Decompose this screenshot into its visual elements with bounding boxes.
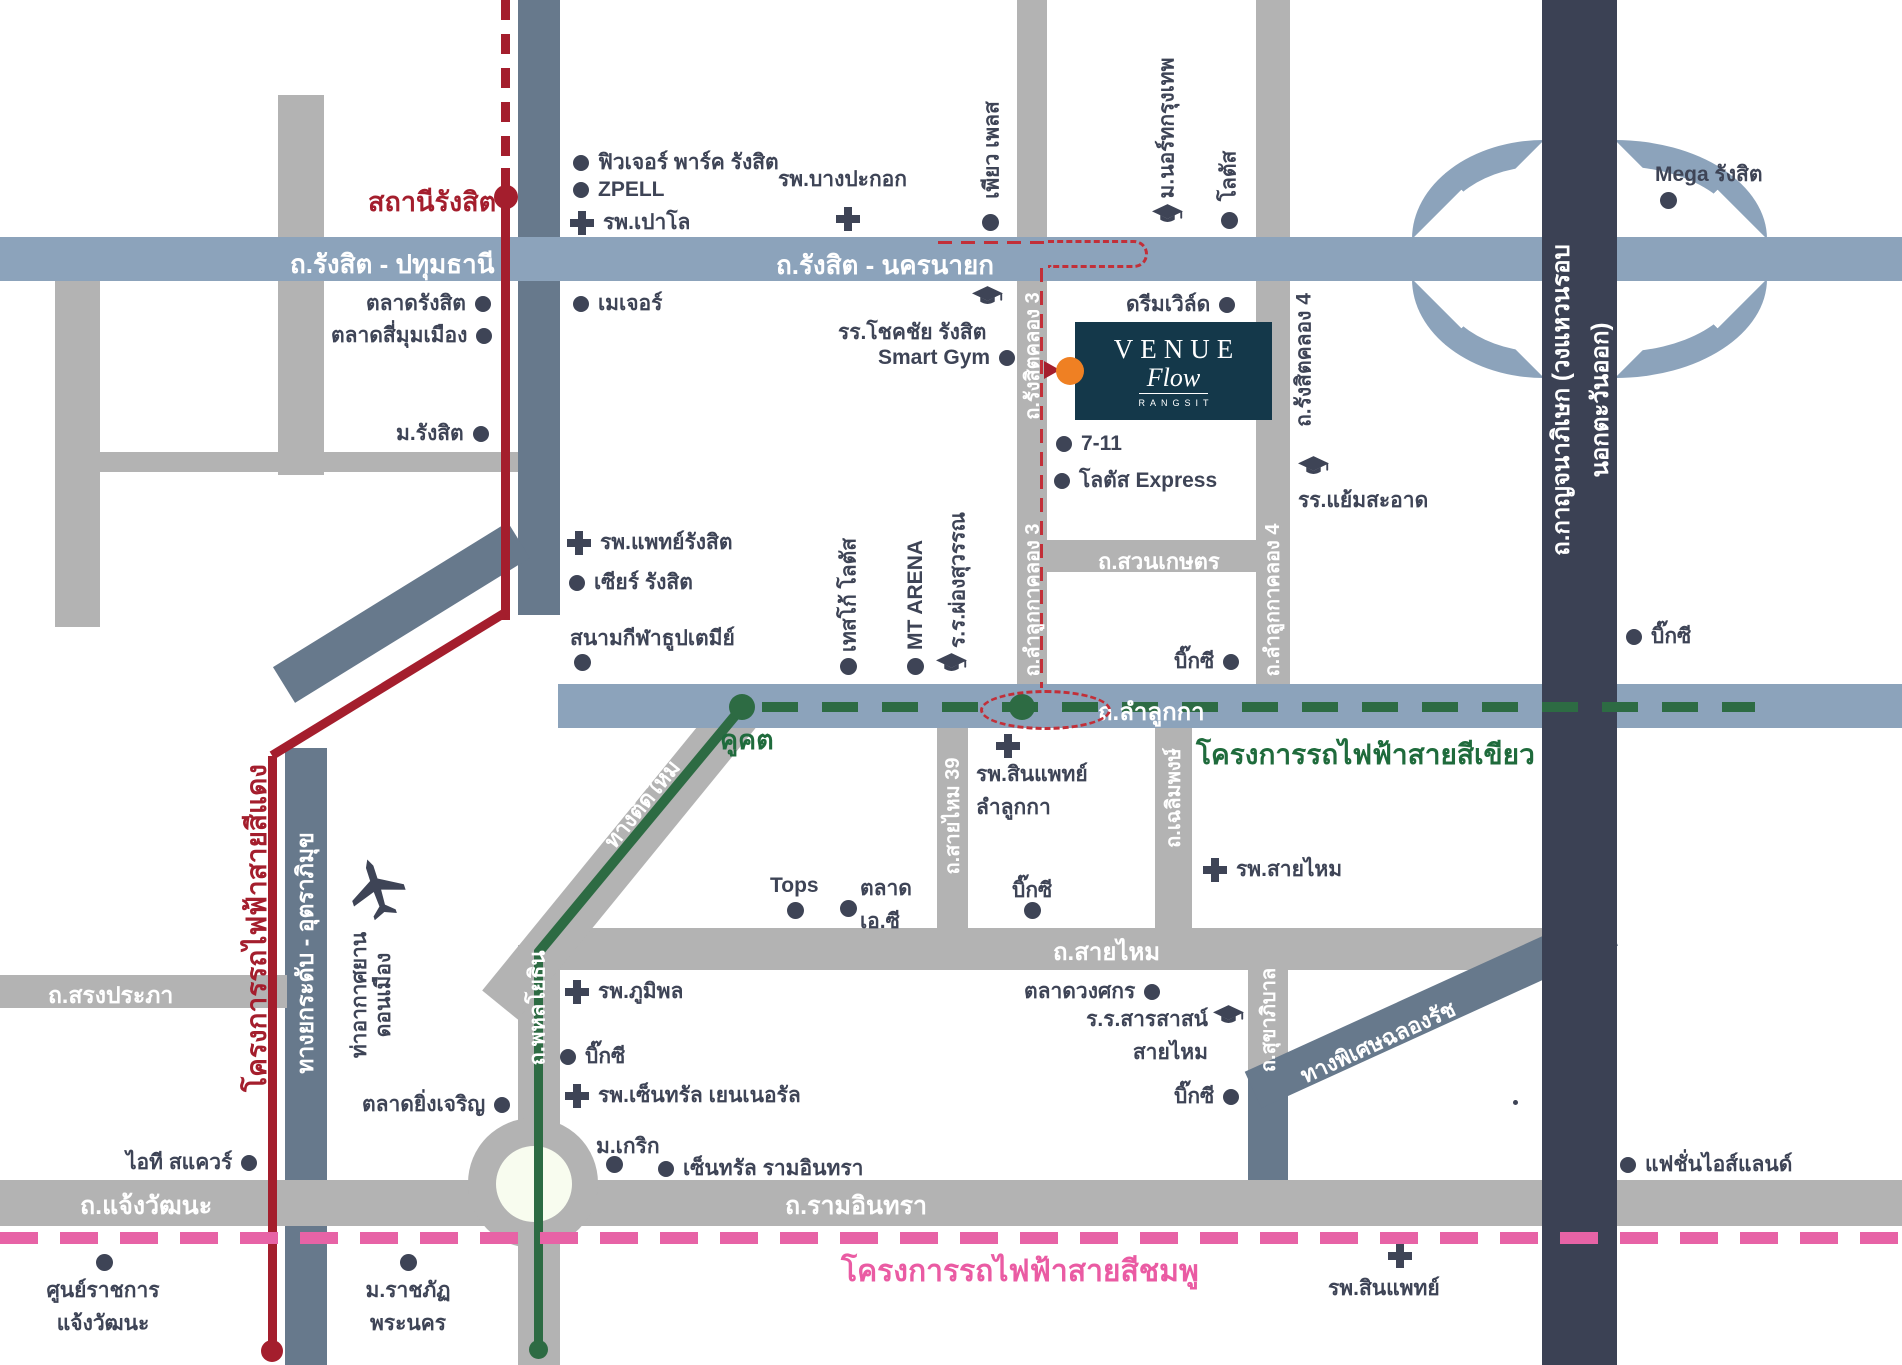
road-left-far (55, 237, 100, 627)
poi-phongsuwan-school: ร.ร.ผ่องสุวรรณ (942, 512, 975, 648)
ramp-arc-bottom-right (1615, 279, 1767, 378)
poi-north-bangkok-university: ม.นอร์ทกรุงเทพ (1151, 58, 1184, 199)
place-dot-icon (1024, 902, 1041, 919)
poi-bigc-sukhaphiban: บิ๊กซี (1174, 1080, 1239, 1113)
red-line-dashed-top (501, 0, 510, 168)
school-cap-icon (972, 286, 1003, 312)
poi-central-general-hospital: รพ.เซ็นทรัล เยนเนอรัล (565, 1079, 801, 1112)
poi-it-square: ไอที สแควร์ (126, 1146, 257, 1179)
poi-major: เมเจอร์ (573, 287, 662, 320)
school-cap-icon (1213, 1005, 1244, 1031)
pink-line-dashed (0, 1232, 1902, 1244)
label-pink-line: โครงการรถไฟฟ้าสายสีชมพู (841, 1248, 1199, 1295)
label-song-prapha: ถ.สรงประภา (48, 978, 173, 1014)
hospital-cross-icon (565, 980, 589, 1004)
place-dot-icon (96, 1254, 113, 1271)
place-dot-icon (1221, 212, 1238, 229)
hospital-cross-icon (1203, 858, 1227, 882)
poi-talad-rangsit: ตลาดรังสิต (366, 287, 491, 320)
place-dot-icon (1626, 629, 1642, 645)
label-saimai: ถ.สายไหม (1053, 932, 1160, 971)
road-saimai (560, 928, 1542, 970)
poi-bigc-khlong4: บิ๊กซี (1174, 645, 1239, 678)
place-dot-icon (1223, 654, 1239, 670)
poi-talad-simummuang: ตลาดสี่มุมเมือง (331, 319, 492, 352)
place-dot-icon (400, 1254, 417, 1271)
project-name: VENUE (1114, 334, 1240, 365)
poi-future-park: ฟิวเจอร์ พาร์ค รังสิต (573, 146, 779, 179)
label-ramindra: ถ.รามอินทรา (785, 1186, 927, 1226)
place-dot-icon (560, 1049, 576, 1065)
label-khukhot: คูคต (720, 718, 774, 761)
place-dot-icon (573, 155, 589, 171)
poi-zpell: ZPELL (573, 178, 665, 202)
poi-krirk-university: ม.เกริก (596, 1130, 660, 1163)
label-lamlukka-khlong4: ถ.ลำลูกกาคลอง 4 (1256, 524, 1288, 677)
location-map: ถ.กาญจนาภิเษก (วงแหวนรอบนอกตะวันออก) ถ.ร… (0, 0, 1902, 1365)
poi-pure-place: เพียว เพลส (976, 101, 1009, 199)
green-line-dashed (762, 702, 1755, 712)
place-dot-icon (982, 214, 999, 231)
poi-lotus-express: โลตัส Express (1054, 464, 1217, 497)
poi-chokchai-school: รร.โชคชัย รังสิต (838, 316, 986, 349)
place-dot-icon (475, 296, 491, 312)
place-dot-icon (1660, 192, 1677, 209)
poi-synphaet-hospital: รพ.สินแพทย์ (1328, 1272, 1440, 1305)
label-chaengwattana: ถ.แจ้งวัฒนะ (80, 1186, 212, 1226)
road-kanchanaphisek (1542, 0, 1617, 1365)
poi-mt-arena: MT ARENA (904, 540, 928, 650)
poi-talad-ac: ตลาด เอ.ซี (860, 872, 912, 938)
place-dot-icon (999, 350, 1015, 366)
place-dot-icon (476, 328, 492, 344)
project-script-name: Flow (1139, 365, 1208, 394)
place-dot-icon (1223, 1089, 1239, 1105)
project-logo-card: VENUE Flow RANGSIT (1075, 322, 1272, 420)
label-rangsit-station: สถานีรังสิต (368, 180, 496, 223)
khukhot-station-dot (729, 694, 755, 720)
poi-mega-rangsit: Mega รังสิต (1655, 158, 1763, 191)
place-dot-icon (574, 654, 591, 671)
poi-yaem-saard-school: รร.แย้มสะอาด (1298, 484, 1428, 517)
place-dot-icon (787, 902, 804, 919)
poi-smart-gym: Smart Gym (878, 346, 1015, 370)
rangsit-station-dot (494, 185, 518, 209)
poi-fashion-island: แฟชั่นไอส์แลนด์ (1620, 1148, 1792, 1181)
poi-saimai-hospital: รพ.สายไหม (1203, 853, 1342, 886)
place-dot-icon (840, 900, 857, 917)
poi-rangsit-university: ม.รังสิต (396, 417, 489, 450)
poi-donmueang-airport: ท่าอากาศยาน ดอนเมือง (348, 932, 396, 1058)
label-chalermpong: ถ.เฉลิมพงษ์ (1157, 748, 1189, 848)
route-dash-top (938, 241, 1050, 244)
label-suan-kaset: ถ.สวนเกษตร (1098, 544, 1220, 579)
project-subtitle: RANGSIT (1138, 398, 1213, 408)
poi-zeer-rangsit: เซียร์ รังสิต (569, 566, 693, 599)
poi-lotus-top: โลตัส (1213, 151, 1246, 202)
poi-yingcharoen-market: ตลาดยิ่งเจริญ (362, 1088, 510, 1121)
station-highlight-oval (980, 690, 1111, 730)
poi-sarasas-school: ร.ร.สารสาสน์ สายไหม (1080, 1003, 1208, 1069)
poi-seven-eleven: 7-11 (1056, 432, 1122, 456)
place-dot-icon (573, 296, 589, 312)
label-sukhaphiban: ถ.สุขาภิบาล (1252, 968, 1284, 1072)
place-dot-icon (840, 658, 857, 675)
project-location-dot (1056, 357, 1084, 385)
ramp-arc-bottom-left (1412, 279, 1544, 378)
poi-paet-rangsit-hospital: รพ.แพทย์รังสิต (567, 526, 732, 559)
place-dot-icon (473, 426, 489, 442)
place-dot-icon (573, 182, 589, 198)
poi-bigc-phahonyothin: บิ๊กซี (560, 1040, 625, 1073)
green-line-end-dot (529, 1340, 548, 1359)
route-uturn (1048, 240, 1148, 268)
place-dot-icon (1620, 1157, 1636, 1173)
label-red-line: โครงการรถไฟฟ้าสายสีแดง (235, 764, 279, 1092)
ramp-arc-top-left (1412, 140, 1544, 239)
poi-tesco-lotus: เทสโก้ โลตัส (833, 538, 866, 652)
place-dot-icon (1219, 297, 1235, 313)
label-rangsit-pathumthani: ถ.รังสิต - ปทุมธานี (290, 244, 495, 285)
small-dot (1513, 1100, 1518, 1105)
poi-sinphaet-lamlukka-hospital: รพ.สินแพทย์ ลำลูกกา (976, 758, 1088, 824)
poi-paolo-hospital: รพ.เปาโล (570, 206, 690, 239)
poi-bigc-ring-road: บิ๊กซี (1626, 620, 1691, 653)
place-dot-icon (606, 1156, 623, 1173)
road-kanchanaphisek-label: ถ.กาญจนาภิเษก (วงแหวนรอบนอกตะวันออก) (1541, 239, 1619, 561)
place-dot-icon (658, 1161, 674, 1177)
poi-thupatemi-stadium: สนามกีฬาธูปเตมีย์ (570, 622, 735, 655)
school-cap-icon (936, 653, 967, 679)
road-cross-top (55, 452, 560, 472)
hospital-cross-icon (570, 211, 594, 235)
road-left-mid (278, 95, 324, 475)
place-dot-icon (241, 1155, 257, 1171)
red-line-end-dot (261, 1340, 283, 1362)
label-phahonyothin: ถ.พหลโยธิน (520, 950, 555, 1065)
label-green-line: โครงการรถไฟฟ้าสายสีเขียว (1196, 733, 1535, 777)
poi-tops: Tops (770, 874, 819, 898)
red-line-top (501, 168, 510, 620)
place-dot-icon (1144, 984, 1160, 1000)
airplane-icon (337, 848, 417, 931)
poi-central-ramindra: เซ็นทรัล รามอินทรา (658, 1152, 863, 1185)
place-dot-icon (1056, 436, 1072, 452)
poi-rajabhat-phranakhon: ม.ราชภัฏ พระนคร (358, 1274, 458, 1340)
label-rangsit-nakhonnayok: ถ.รังสิต - นครนายก (776, 245, 994, 286)
label-lamlukka-khlong3: ถ.ลำลูกกาคลอง 3 (1016, 524, 1048, 677)
place-dot-icon (494, 1097, 510, 1113)
place-dot-icon (569, 575, 585, 591)
school-cap-icon (1298, 456, 1329, 482)
hospital-cross-icon (567, 531, 591, 555)
poi-bhumibol-hospital: รพ.ภูมิพล (565, 975, 683, 1008)
place-dot-icon (907, 658, 924, 675)
tollway-top (518, 0, 560, 615)
hospital-cross-icon (565, 1084, 589, 1108)
label-saimai39: ถ.สายไหม 39 (936, 757, 968, 874)
label-rangsit-khlong3: ถ.รังสิตคลอง 3 (1016, 292, 1048, 419)
label-tollway: ทางยกระดับ - อุตราภิมุข (288, 832, 324, 1073)
label-lamlukka: ถ.ลำลูกกา (1098, 692, 1205, 731)
poi-dream-world: ดรีมเวิล์ด (1126, 288, 1235, 321)
poi-bangpakok-hospital: รพ.บางปะกอก (778, 163, 907, 196)
label-rangsit-khlong4: ถ.รังสิตคลอง 4 (1288, 293, 1321, 427)
school-cap-icon (1152, 204, 1183, 230)
poi-government-complex: ศูนย์ราชการ แจ้งวัฒนะ (38, 1274, 168, 1340)
place-dot-icon (1054, 473, 1070, 489)
